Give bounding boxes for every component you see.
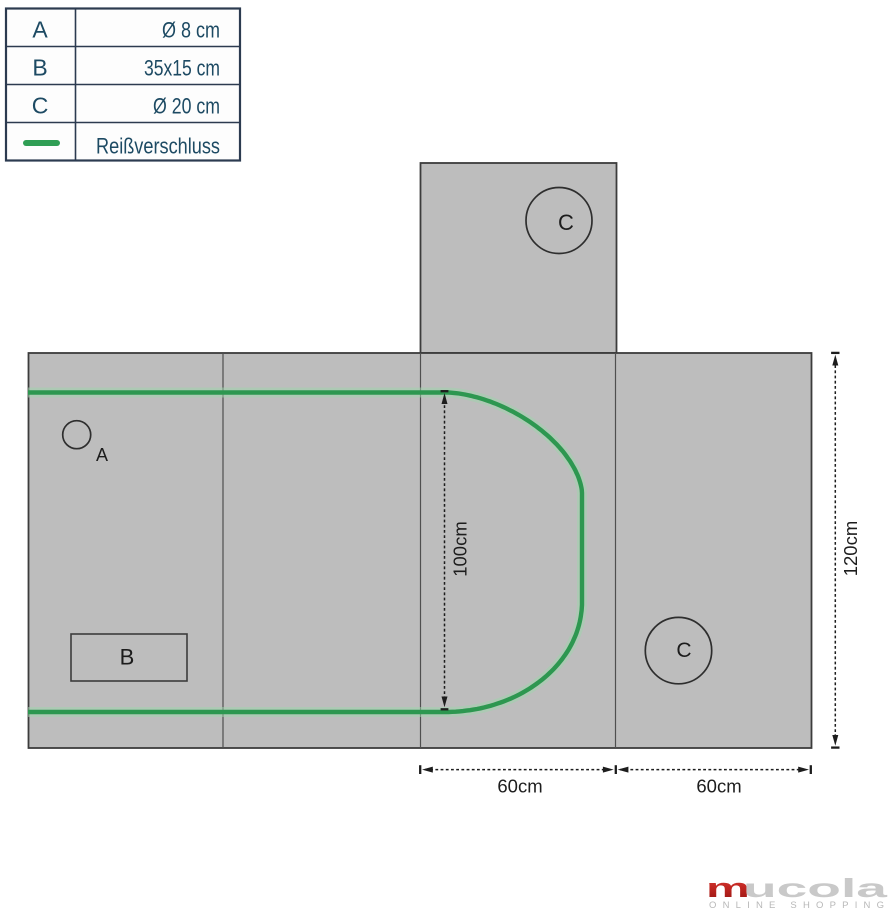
svg-text:60cm: 60cm: [497, 776, 542, 797]
svg-text:60cm: 60cm: [696, 776, 741, 797]
svg-text:C: C: [32, 93, 49, 119]
svg-text:C: C: [676, 639, 691, 662]
svg-text:100cm: 100cm: [450, 521, 471, 577]
svg-text:ucola: ucola: [743, 874, 888, 903]
svg-text:Ø 20 cm: Ø 20 cm: [153, 94, 220, 119]
svg-text:Reißverschluss: Reißverschluss: [96, 134, 220, 159]
svg-text:A: A: [32, 17, 48, 43]
svg-text:120cm: 120cm: [840, 521, 861, 577]
svg-text:B: B: [120, 645, 135, 670]
svg-text:Ø 8 cm: Ø 8 cm: [162, 18, 220, 43]
svg-text:35x15 cm: 35x15 cm: [144, 56, 220, 81]
svg-text:B: B: [32, 55, 47, 81]
svg-text:C: C: [558, 210, 574, 235]
svg-text:A: A: [96, 445, 108, 465]
